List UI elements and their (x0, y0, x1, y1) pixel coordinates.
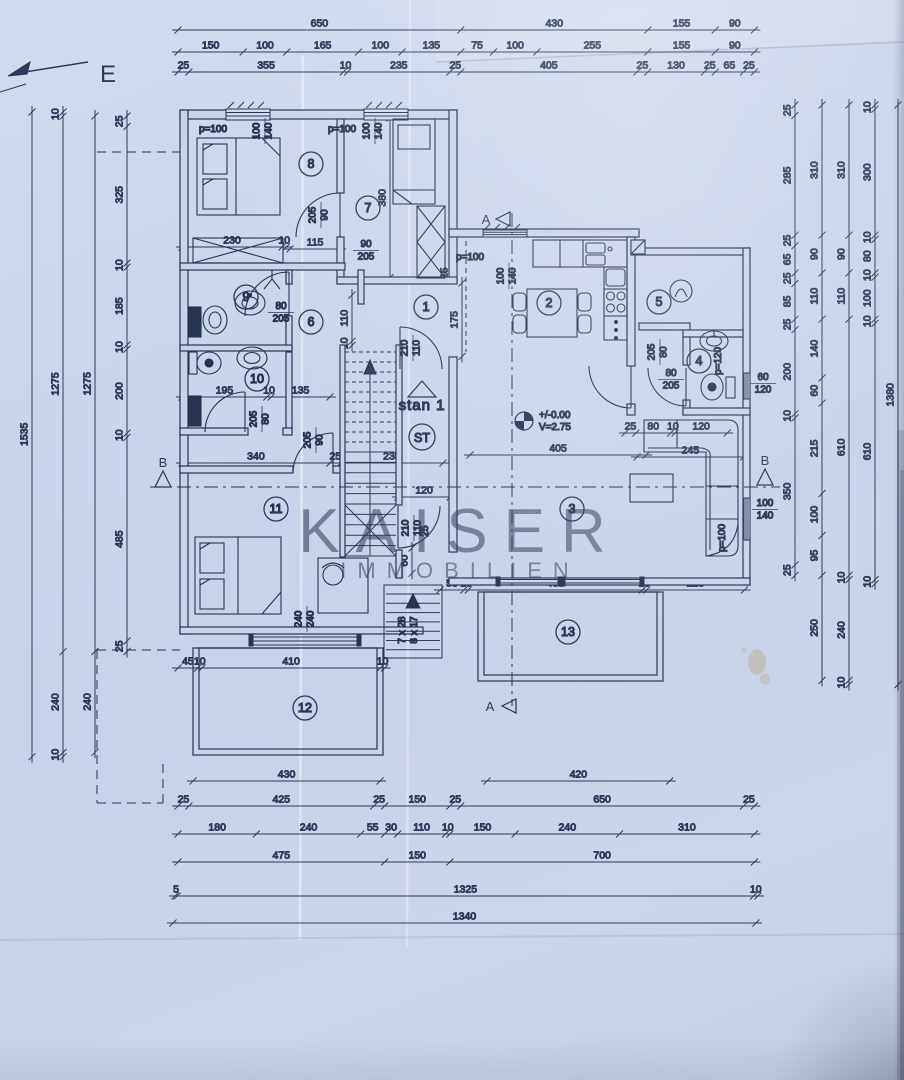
plan-label: 20590 (308, 202, 331, 228)
dim-label: 135 (292, 385, 310, 397)
dim-chain-left-chain4: 2532510185102001048525 (114, 110, 131, 658)
dim-label: 10 (862, 101, 874, 113)
dim-label: 135 (423, 40, 441, 52)
dim-label: 700 (593, 850, 611, 862)
entry-arrow (408, 381, 436, 397)
watermark-line1: KAISER (298, 497, 621, 566)
room-number-label: 12 (298, 701, 312, 715)
dim-label: 80 (647, 421, 659, 433)
dim-label: 100 (862, 289, 874, 307)
size-label: 205 (308, 206, 319, 223)
dim-label: 10 (114, 429, 126, 441)
dim-chain-right-chain2: 310901101406021510095250 (809, 99, 826, 686)
dim-label: 95 (809, 549, 821, 561)
room-number-label: 1 (423, 300, 430, 314)
dim-label: 165 (314, 40, 332, 52)
plan-label: 20590 (303, 427, 326, 453)
dim-label: 325 (114, 186, 126, 204)
dim-chain-bottom-terrace13: 420 (481, 769, 676, 785)
dim-chain-left-chain2: 10127524010 (50, 106, 67, 763)
size-label: 100 (252, 122, 263, 139)
dim-label: 310 (809, 161, 821, 179)
bed-room8 (197, 138, 280, 215)
dim-label: 240 (559, 822, 577, 834)
dim-label: 650 (593, 794, 611, 806)
dim-label: 25 (782, 234, 794, 246)
dimension-chains: 6504301559015010016510013575100255155902… (19, 18, 902, 927)
radiator-bath10 (189, 396, 201, 426)
dim-label: 240 (50, 693, 62, 711)
elevation-marker: +/-0.00 V=2.75 (515, 410, 571, 433)
room-number-label: 9 (243, 290, 250, 304)
toilet-bath9 (189, 306, 227, 337)
terraces (193, 592, 663, 755)
section-a-bottom-arrow (502, 699, 516, 713)
dim-chain-right-chain4: 103001080101001061010 (862, 99, 879, 590)
sink-bath9 (235, 291, 265, 315)
dim-chain-bottom-terrace12: 430 (187, 769, 386, 785)
dim-label: 65 (782, 253, 794, 265)
section-b-left-arrow (155, 471, 171, 487)
plan-label: p=120 (713, 347, 724, 376)
elevation-height: V=2.75 (539, 422, 571, 433)
toilet-bath4 (701, 374, 735, 400)
dim-label: 155 (673, 40, 691, 52)
dim-label: 60 (809, 385, 821, 397)
dim-label: 25 (782, 272, 794, 284)
dim-label: 25 (449, 794, 461, 806)
size-label: 90 (360, 239, 372, 250)
kitchen-counter (533, 240, 627, 340)
door-room10 (205, 392, 245, 432)
dim-label: 1380 (885, 383, 897, 407)
dim-label: 610 (862, 443, 874, 461)
toilet-bath10 (189, 352, 221, 374)
dim-label: 405 (549, 443, 567, 455)
room-number-12: 12 (293, 696, 317, 720)
dim-chain-bottom-row3: 475150700 (172, 850, 760, 866)
room-number-label: 8 (308, 157, 315, 171)
dim-label: 25 (743, 794, 755, 806)
plan-label: 210110 (400, 335, 423, 361)
bed-room7 (393, 119, 435, 204)
room-number-5: 5 (647, 290, 671, 314)
dim-label: 255 (584, 40, 602, 52)
dim-label: 240 (300, 822, 318, 834)
section-b-right-arrow (757, 469, 773, 485)
room-number-label: 4 (696, 354, 703, 368)
room-number-label: 13 (561, 625, 575, 639)
dim-label: 120 (415, 485, 433, 497)
dim-label: 25 (373, 794, 385, 806)
plan-label: p=100 (717, 524, 728, 553)
section-b-right-label: B (761, 453, 770, 468)
wall-corridor (286, 352, 292, 432)
size-label: 7 x 28 (397, 616, 408, 644)
wall-room5-bottom (639, 323, 690, 330)
dim-chain-right-chain1: 2528525652585252001035025 (782, 99, 799, 581)
blueprint-photo: E 65043015590150100165100135751002551559… (0, 0, 904, 1080)
room-number-label: 10 (250, 372, 264, 386)
section-a-top-arrow (496, 212, 510, 226)
wall-left-outer (180, 110, 188, 634)
floor-plan: E 65043015590150100165100135751002551559… (0, 0, 904, 1080)
dim-label: 610 (836, 438, 848, 456)
plan-label: 7 x 28 (397, 616, 408, 644)
property-line-sw (97, 650, 180, 803)
dim-label: 5 (173, 884, 179, 896)
window-room8 (226, 102, 270, 120)
dim-chain-bottom-row2: 180240553011010150240310 (172, 822, 760, 838)
wall-top-wing (180, 110, 457, 119)
dim-label: 10 (862, 269, 874, 281)
size-label: 140 (757, 511, 774, 522)
dim-label: 1275 (50, 372, 62, 396)
plan-label: 100140 (496, 263, 519, 289)
dim-label: 55 (367, 822, 379, 834)
wall-right-wing-top (631, 248, 750, 255)
dim-chain-interior-wall_110: 11010 (339, 289, 356, 351)
dim-chain-bottom-row1: 25425251502565025 (172, 794, 760, 810)
elevation-level: +/-0.00 (539, 410, 571, 421)
dim-label: 350 (782, 482, 794, 500)
dim-label: 215 (809, 439, 821, 457)
apartment-annotations: stan 1 ST +/-0.00 V=2.75 (399, 381, 572, 450)
dim-chain-left-chain1: 1535 (19, 106, 36, 763)
size-label: p=100 (328, 124, 357, 135)
room-number-1: 1 (414, 295, 438, 319)
dim-label: 100 (809, 506, 821, 524)
size-label: p=100 (717, 524, 728, 553)
dim-label: 175 (449, 311, 461, 329)
plan-label: 100140 (362, 118, 385, 144)
dim-label: 140 (809, 340, 821, 358)
dim-label: 1535 (19, 423, 31, 447)
dim-label: 300 (862, 163, 874, 181)
size-label: 210 (400, 339, 411, 356)
dim-label: 90 (729, 18, 741, 30)
dim-label: 355 (257, 60, 275, 72)
size-label: 100 (362, 122, 373, 139)
wall-bath4-bottom (683, 408, 750, 415)
room-number-7: 7 (356, 196, 380, 220)
dim-label: 150 (408, 850, 426, 862)
room-number-10: 10 (245, 367, 269, 391)
wall-kitchen-right (627, 237, 635, 366)
wall-kitchen-top (449, 229, 639, 237)
size-label: 205 (358, 252, 375, 263)
dim-label: 10 (862, 576, 874, 588)
size-label: 100 (496, 267, 507, 284)
room-number-label: 2 (546, 296, 553, 310)
dim-label: 430 (278, 769, 296, 781)
dim-label: 10 (782, 410, 794, 422)
dim-label: 110 (836, 288, 848, 305)
dim-label: 120 (692, 421, 710, 433)
wall-10-bottom-b (283, 428, 292, 435)
dim-label: 425 (273, 794, 291, 806)
dim-label: 485 (114, 530, 126, 548)
dim-label: 25 (637, 60, 649, 72)
plan-label: p=100 (328, 124, 357, 135)
dim-label: 130 (667, 60, 685, 72)
window-bath4 (744, 373, 750, 399)
plan-label: 20580 (249, 406, 272, 432)
dim-label: 10 (114, 341, 126, 353)
dim-label: 25 (782, 318, 794, 330)
dim-label: 180 (208, 822, 226, 834)
dim-label: 85 (782, 295, 794, 307)
wall-room8-bottom (180, 263, 345, 270)
dim-label: 1325 (454, 884, 478, 896)
watermark: KAISER IMMOBILIEN (298, 497, 621, 583)
dim-label: 150 (474, 822, 492, 834)
dim-label: 100 (372, 40, 390, 52)
room-number-11: 11 (264, 497, 288, 521)
dim-label: 90 (809, 248, 821, 260)
window-room7 (364, 102, 408, 120)
plan-label: 100140 (252, 118, 275, 144)
dim-chain-interior-living_405: 405 (464, 443, 652, 459)
dim-label: 10 (50, 108, 62, 120)
size-label: 240 (294, 610, 305, 627)
dim-label: 10 (862, 315, 874, 327)
dim-label: 340 (247, 451, 265, 463)
dim-label: 285 (782, 166, 794, 184)
dim-label: 10 (836, 572, 848, 584)
dim-label: 110 (413, 822, 430, 834)
boiler-room5 (670, 280, 692, 302)
dim-label: 25 (178, 794, 190, 806)
dim-label: 240 (82, 693, 94, 711)
plan-label: 20580 (647, 339, 670, 365)
dim-label: 10 (50, 749, 62, 761)
dim-label: 250 (809, 619, 821, 637)
dim-label: 150 (202, 40, 220, 52)
dim-label: 25 (782, 564, 794, 576)
room-number-label: 6 (308, 315, 315, 329)
plan-label: 8 x 17 (409, 616, 420, 644)
dim-label: 25 (449, 60, 461, 72)
dim-label: 410 (282, 656, 300, 668)
plan-label: 90205 (353, 239, 379, 263)
window-living-right (744, 498, 750, 540)
staircase-label: ST (414, 431, 430, 445)
dim-label: 100 (256, 40, 274, 52)
dim-label: 45 (182, 656, 194, 668)
wall-10-bottom-a (180, 428, 248, 435)
size-label: 80 (665, 368, 677, 379)
window-room11 (249, 635, 361, 646)
dim-label: 75 (471, 40, 483, 52)
compass: E (0, 61, 116, 92)
room-number-2: 2 (537, 291, 561, 315)
dim-label: 25 (782, 104, 794, 116)
dim-label: 650 (311, 18, 329, 30)
plan-label: 240240 (294, 606, 317, 632)
coffee-table (630, 474, 673, 502)
dim-label: 1340 (453, 911, 477, 923)
room-number-label: 7 (365, 201, 372, 215)
dim-chain-bottom-row4: 5132510 (169, 884, 764, 900)
room-number-label: 5 (656, 295, 663, 309)
dim-chain-interior-terrace12_row: 451041010 (172, 656, 391, 672)
dim-label: 10 (114, 259, 126, 271)
plan-label: p=100 (199, 124, 228, 135)
plan-drawing: A A B B stan 1 ST +/-0.00 V=2.75 1234567… (97, 102, 780, 803)
dim-label: 310 (836, 161, 848, 179)
dim-label: 155 (673, 18, 691, 30)
dim-label: 100 (506, 40, 524, 52)
apartment-name: stan 1 (399, 397, 446, 414)
plan-label: p=100 (456, 252, 485, 263)
size-label: 205 (647, 343, 658, 360)
dim-label: 10 (862, 231, 874, 243)
section-b-left-label: B (159, 455, 168, 470)
dim-label: 230 (223, 235, 241, 247)
size-label: 60 (757, 372, 769, 383)
dim-label: 200 (782, 363, 794, 381)
dim-chain-bottom-row5: 1340 (167, 911, 762, 927)
dim-label: 25 (743, 60, 755, 72)
dim-label: 475 (273, 850, 291, 862)
dim-label: 90 (836, 248, 848, 260)
wall-9-10 (180, 345, 292, 351)
dim-chain-interior-sofa_row: 258010120 (619, 421, 733, 437)
wall-room11-top-a (180, 466, 293, 473)
dim-label: 150 (408, 794, 426, 806)
dim-label: 80 (862, 250, 874, 262)
size-label: 205 (273, 314, 290, 325)
dim-label: 430 (546, 18, 564, 30)
plan-label: 60120 (750, 372, 776, 396)
dim-label: 185 (114, 297, 126, 315)
size-label: 205 (663, 381, 680, 392)
dim-label: 1275 (82, 372, 94, 396)
dim-label: 380 (377, 189, 389, 207)
size-label: 205 (303, 431, 314, 448)
room-number-13: 13 (556, 620, 580, 644)
dim-label: 30 (385, 822, 397, 834)
dim-chain-right-chain3: 310901106101024010 (836, 99, 853, 691)
dim-label: 245 (682, 445, 700, 457)
size-label: p=100 (456, 252, 485, 263)
dim-chain-top-row3: 25355102352540525130256525 (172, 60, 760, 76)
dim-label: 110 (809, 288, 821, 305)
dim-label: 405 (540, 60, 558, 72)
size-label: 80 (275, 301, 287, 312)
bed-room11 (195, 537, 281, 614)
section-a-top-label: A (482, 212, 491, 227)
wall-6-1 (358, 270, 364, 304)
watermark-line2: IMMOBILIEN (340, 558, 580, 583)
dim-label: 25 (625, 421, 637, 433)
dim-label: 65 (724, 60, 736, 72)
size-label: 100 (757, 498, 774, 509)
room-number-label: 11 (270, 502, 283, 516)
dim-label: 200 (114, 382, 126, 400)
dim-label: 110 (339, 310, 351, 327)
section-a-bottom-label: A (486, 699, 495, 714)
wardrobe-room7 (417, 206, 445, 278)
compass-label: E (100, 61, 116, 88)
size-label: 8 x 17 (409, 616, 420, 644)
size-label: 205 (249, 410, 260, 427)
dim-label: 310 (678, 822, 696, 834)
plan-label: 80205 (658, 368, 684, 392)
dim-label: 240 (836, 621, 848, 639)
dim-label: 420 (570, 769, 588, 781)
door-corridor4 (589, 366, 631, 408)
dim-label: 10 (836, 677, 848, 689)
dim-chain-left-chain3: 1275240 (82, 110, 99, 758)
dim-label: 235 (390, 60, 408, 72)
size-label: p=120 (713, 347, 724, 376)
wall-stairs-right-a (396, 345, 402, 505)
dim-chain-interior-opening_175: 175 (449, 277, 466, 363)
size-label: 120 (755, 385, 772, 396)
dim-label: 25 (704, 60, 716, 72)
dim-label: 25 (114, 115, 126, 127)
dim-label: 115 (307, 237, 324, 249)
plan-label: 100140 (752, 498, 778, 522)
dim-label: 25 (178, 60, 190, 72)
dim-label: 90 (729, 40, 741, 52)
size-label: p=100 (199, 124, 228, 135)
